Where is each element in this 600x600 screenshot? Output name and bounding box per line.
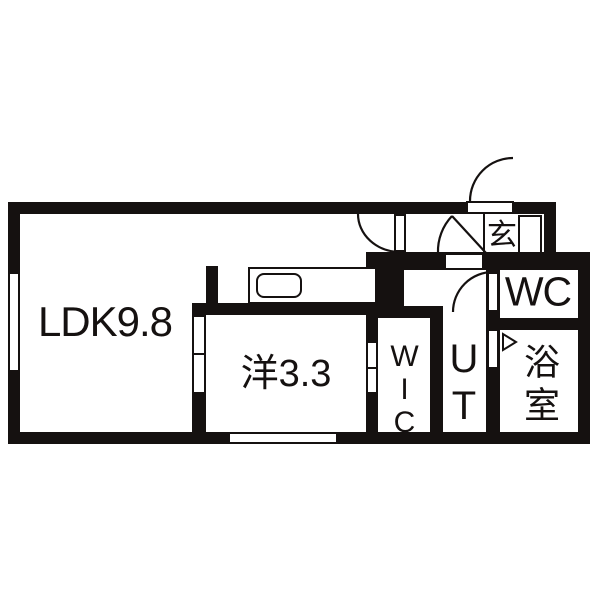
floorplan-canvas: LDK9.8 洋3.3 WIC UT WC 浴室 玄 — [0, 0, 600, 600]
wc-door-arc-icon — [453, 272, 493, 312]
room-label-ut: UT — [444, 337, 484, 431]
entrance-door-arc-icon — [470, 158, 513, 201]
room-label-entrance: 玄 — [487, 221, 517, 251]
room-label-ldk: LDK9.8 — [38, 301, 172, 343]
genkan-door-arc-icon — [438, 216, 452, 253]
genkan-door-leaf-icon — [452, 216, 486, 253]
room-label-bath: 浴室 — [521, 343, 557, 429]
bath-door-arrow-icon — [503, 334, 516, 350]
room-label-wc: WC — [505, 272, 571, 313]
room-label-bedroom: 洋3.3 — [241, 355, 332, 393]
hall-door-arc-icon — [358, 214, 400, 252]
room-label-wic: WIC — [389, 340, 419, 439]
